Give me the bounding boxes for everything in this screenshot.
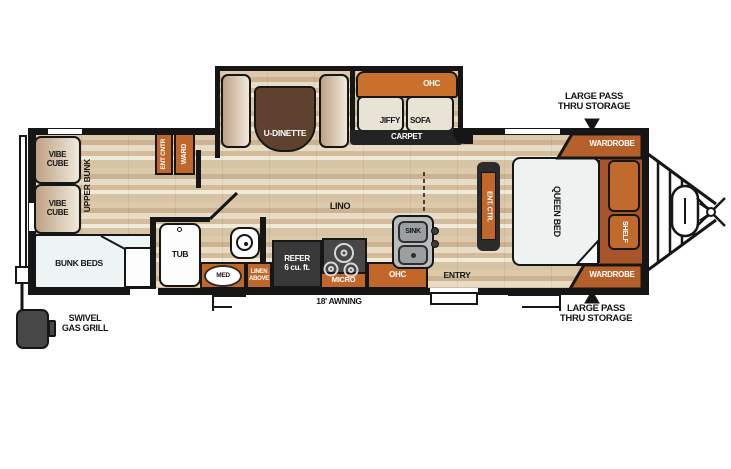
gas-grill-icon: [16, 309, 49, 349]
stove-burners-icon: [325, 244, 358, 277]
storage-bottom-label: LARGE PASS THRU STORAGE: [546, 304, 646, 325]
bath-door-line: [210, 193, 237, 219]
grill-swivel-joint: [15, 266, 30, 284]
bed-fold-corner: [577, 241, 598, 264]
rear-bumper: [19, 135, 27, 283]
grill-label: SWIVEL GAS GRILL: [52, 314, 118, 334]
entry-step: [430, 292, 478, 305]
wardrobe-bottom-label: WARDROBE: [584, 271, 640, 280]
lineart-overlay: [0, 0, 731, 469]
wardrobe-top-label: WARDROBE: [582, 140, 642, 149]
tongue-jack-icon: [697, 198, 725, 226]
awning-label: 18' AWNING: [308, 297, 370, 306]
arrow-down-icon: [585, 119, 599, 131]
arrow-up-icon: [585, 291, 599, 303]
stabilizer-jack-left: [213, 291, 246, 311]
lino-label: LINO: [316, 202, 364, 212]
entry-label: ENTRY: [438, 271, 476, 280]
storage-top-label: LARGE PASS THRU STORAGE: [544, 92, 644, 113]
rv-floorplan: U-DINETTE OHC JIFFY SOFA CARPET VIBE CUB…: [0, 0, 731, 469]
